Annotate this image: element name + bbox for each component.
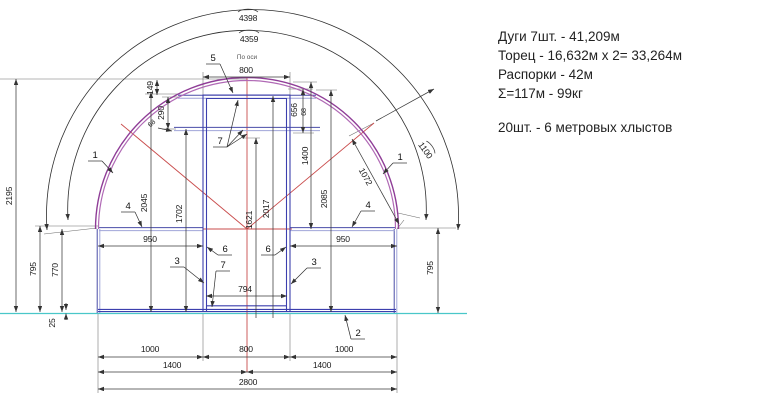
dim-1000-left: 1000 [141,344,160,354]
note-rods: 20шт. - 6 метровых хлыстов [498,118,682,137]
dim-149: 149 [145,81,155,95]
dim-290: 290 [156,106,166,120]
dim-1702: 1702 [174,204,184,223]
label-base: 2 [355,328,360,339]
label-jamb-left: 3 [174,256,179,267]
drawing-canvas: 4398 4359 По оси 800 149 290 68 656 68 1… [0,0,768,405]
dim-2085: 2085 [319,189,329,208]
label-jamb-right: 3 [311,257,316,268]
dim-2045: 2045 [139,193,149,212]
label-strut-left: 4 [125,201,130,212]
dim-top-800: 800 [239,65,253,75]
dim-2800: 2800 [239,377,258,387]
dim-795-left: 795 [28,262,38,276]
dim-1100: 1100 [416,140,435,161]
dim-1000-right: 1000 [335,344,354,354]
label-ridge-bar: 5 [210,53,215,64]
label-arch-right: 1 [397,152,402,163]
label-post-right: 6 [265,244,270,255]
note-arcs: Дуги 7шт. - 41,209м [498,27,682,46]
label-arch-left: 1 [92,150,97,161]
dim-small-right: 68 [301,108,308,116]
dim-950-left: 950 [143,234,157,244]
label-header: 7 [217,136,222,147]
dim-950-right: 950 [336,234,350,244]
dim-1072: 1072 [357,166,375,187]
dim-656: 656 [289,103,299,117]
dim-arc-outer: 4398 [239,13,258,23]
dim-2017: 2017 [261,199,271,218]
dim-795-right: 795 [425,261,435,275]
label-sill: 7 [220,260,225,271]
label-post-left: 6 [222,244,227,255]
dim-1621: 1621 [244,210,254,229]
dimension-lines [16,9,438,389]
note-end-wall: Торец - 16,632м х 2= 33,264м [498,46,682,65]
dim-1400: 1400 [300,146,310,165]
note-struts: Распорки - 42м [498,65,682,84]
extension-lines [0,72,456,393]
dim-2195: 2195 [4,186,14,205]
dim-800-bottom: 800 [239,344,253,354]
dim-arc-inner: 4359 [240,34,259,44]
notes-spacer [498,103,682,118]
dim-25: 25 [47,318,57,328]
label-strut-right: 4 [365,200,370,211]
materials-notes: Дуги 7шт. - 41,209м Торец - 16,632м х 2=… [498,27,682,137]
dim-1400-right: 1400 [313,360,332,370]
note-total: Σ=117м - 99кг [498,84,682,103]
dim-794: 794 [238,284,252,294]
axis-note: По оси [237,54,258,61]
dim-1400-left: 1400 [163,360,182,370]
dim-770: 770 [50,263,60,277]
